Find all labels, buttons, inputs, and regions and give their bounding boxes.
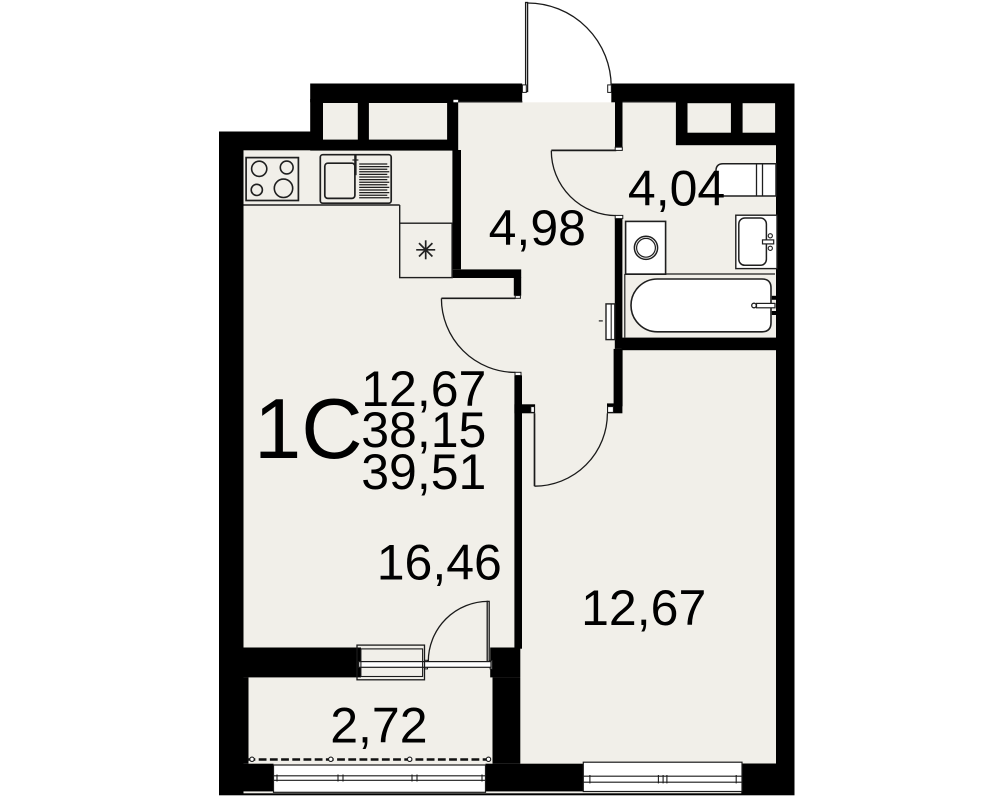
svg-text:39,51: 39,51	[361, 444, 486, 500]
svg-text:2,72: 2,72	[330, 698, 427, 754]
svg-text:16,46: 16,46	[377, 534, 502, 590]
svg-text:1С: 1С	[254, 382, 363, 477]
svg-text:4,98: 4,98	[489, 200, 586, 256]
svg-text:12,67: 12,67	[581, 580, 706, 636]
svg-text:4,04: 4,04	[628, 161, 725, 217]
